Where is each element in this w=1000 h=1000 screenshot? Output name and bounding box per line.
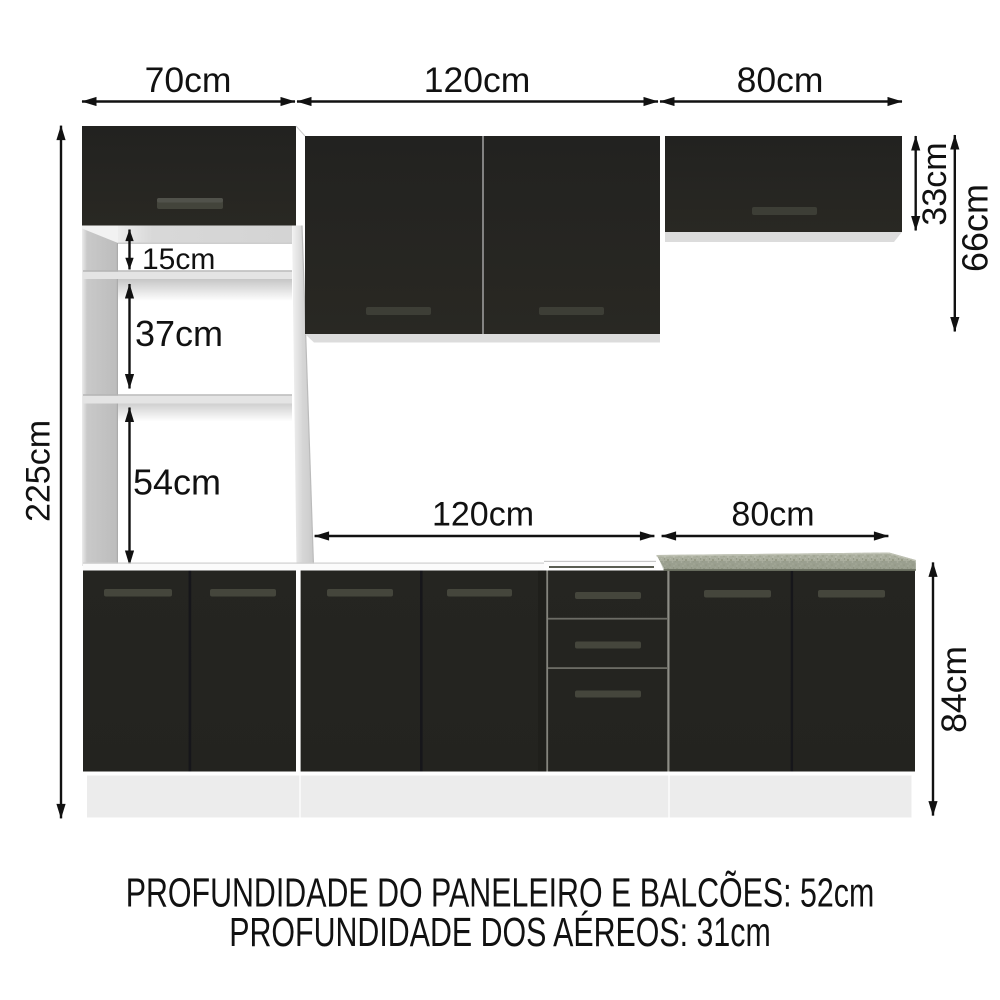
svg-text:33cm: 33cm — [916, 142, 954, 225]
svg-text:37cm: 37cm — [135, 313, 223, 354]
svg-text:80cm: 80cm — [737, 60, 824, 100]
svg-text:54cm: 54cm — [133, 462, 221, 503]
svg-text:120cm: 120cm — [432, 496, 534, 534]
svg-text:120cm: 120cm — [424, 60, 531, 100]
svg-text:225cm: 225cm — [20, 420, 58, 522]
svg-text:PROFUNDIDADE DO PANELEIRO E BA: PROFUNDIDADE DO PANELEIRO E BALCÕES: 52c… — [126, 870, 875, 915]
svg-text:70cm: 70cm — [145, 60, 232, 100]
svg-text:66cm: 66cm — [955, 184, 996, 272]
svg-text:80cm: 80cm — [731, 496, 814, 534]
svg-text:84cm: 84cm — [934, 646, 974, 733]
svg-text:PROFUNDIDADE DOS AÉREOS: 31cm: PROFUNDIDADE DOS AÉREOS: 31cm — [229, 910, 771, 955]
svg-text:15cm: 15cm — [142, 243, 215, 276]
